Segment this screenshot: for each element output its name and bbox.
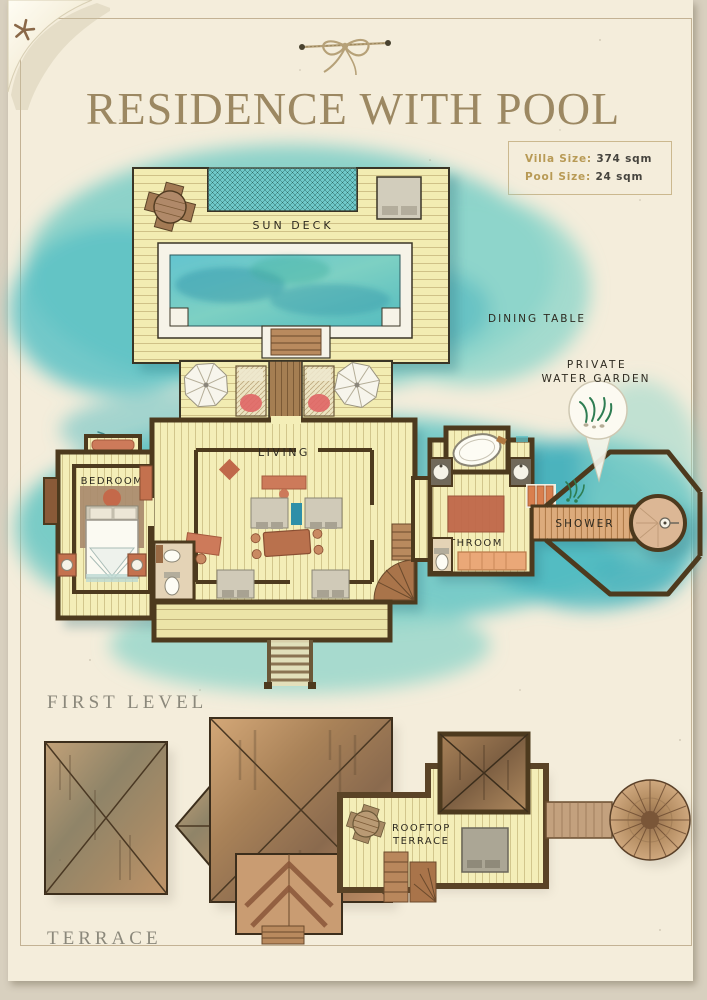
- bathroom-wing: BATHROOM: [413, 428, 532, 574]
- thatch-umbrella-roof-icon: [610, 780, 690, 860]
- gable-roof: [236, 854, 342, 944]
- sun-deck: SUN DECK: [133, 168, 449, 363]
- first-level-section-label: FIRST LEVEL: [47, 692, 207, 714]
- door-gap: [147, 498, 154, 526]
- twine-bow-decoration: [290, 30, 410, 86]
- terrace-section-label: TERRACE: [47, 928, 162, 950]
- rooftop-terrace-label-line2: TERRACE: [392, 836, 449, 847]
- water-inlet: [208, 168, 357, 211]
- sofa-right: [305, 498, 342, 529]
- water-garden-label: WATER GARDEN: [541, 373, 650, 385]
- toilet-room: [154, 542, 194, 600]
- vanity-left: [430, 458, 452, 486]
- terrace-walkway: [546, 802, 612, 838]
- sun-lounger-left: [236, 366, 266, 416]
- gable-steps: [262, 926, 304, 944]
- sofa-left: [251, 498, 288, 529]
- vanity-right: [510, 458, 532, 486]
- living-label: LIVING: [258, 446, 310, 459]
- rooftop-daybed: [462, 828, 508, 872]
- bath-toilet: [432, 538, 452, 572]
- pool-steps: [262, 326, 330, 358]
- door-gap: [271, 416, 301, 424]
- entry-walkway: [269, 361, 302, 421]
- sea-ladder: [264, 640, 316, 689]
- page-curl: [0, 0, 110, 110]
- water-feature: [291, 503, 302, 525]
- deck-daybed: [377, 177, 421, 219]
- door-gap: [516, 436, 528, 442]
- terrace-plan: ROOFTOP TERRACE: [45, 718, 696, 944]
- sun-lounger-right: [304, 366, 334, 416]
- round-cushion: [103, 489, 121, 507]
- dresser: [140, 466, 152, 500]
- nightstand-left: [58, 554, 76, 576]
- bedroom-roof: [45, 742, 167, 894]
- daybed-left: [217, 570, 254, 598]
- shower-platform: [631, 496, 685, 550]
- bath-rug: [448, 496, 504, 532]
- brochure-page: { "header": { "title": "RESIDENCE WITH P…: [0, 0, 707, 1000]
- private-label: PRIVATE: [567, 359, 627, 371]
- bedroom-wing: BEDROOM: [44, 436, 154, 618]
- shower-label: SHOWER: [555, 518, 614, 530]
- pin-dot-left: [299, 44, 305, 50]
- dining-table-label: DINING TABLE: [488, 313, 586, 325]
- bench: [92, 440, 134, 450]
- console-table: [262, 476, 306, 489]
- sun-deck-label: SUN DECK: [252, 219, 333, 232]
- living-pavilion: LIVING: [152, 416, 415, 602]
- rooftop-terrace-label-line1: ROOFTOP: [392, 823, 451, 834]
- wardrobe: [44, 478, 58, 524]
- bathroom-roof: [440, 734, 528, 812]
- bedroom-label: BEDROOM: [81, 476, 144, 487]
- pin-dot-right: [385, 40, 391, 46]
- nightstand-right: [128, 554, 146, 576]
- bath-bench: [458, 552, 526, 570]
- daybed-right: [312, 570, 349, 598]
- floor-plan-drawing: SUN DECK: [0, 0, 707, 1000]
- parasol-deck: [177, 356, 392, 421]
